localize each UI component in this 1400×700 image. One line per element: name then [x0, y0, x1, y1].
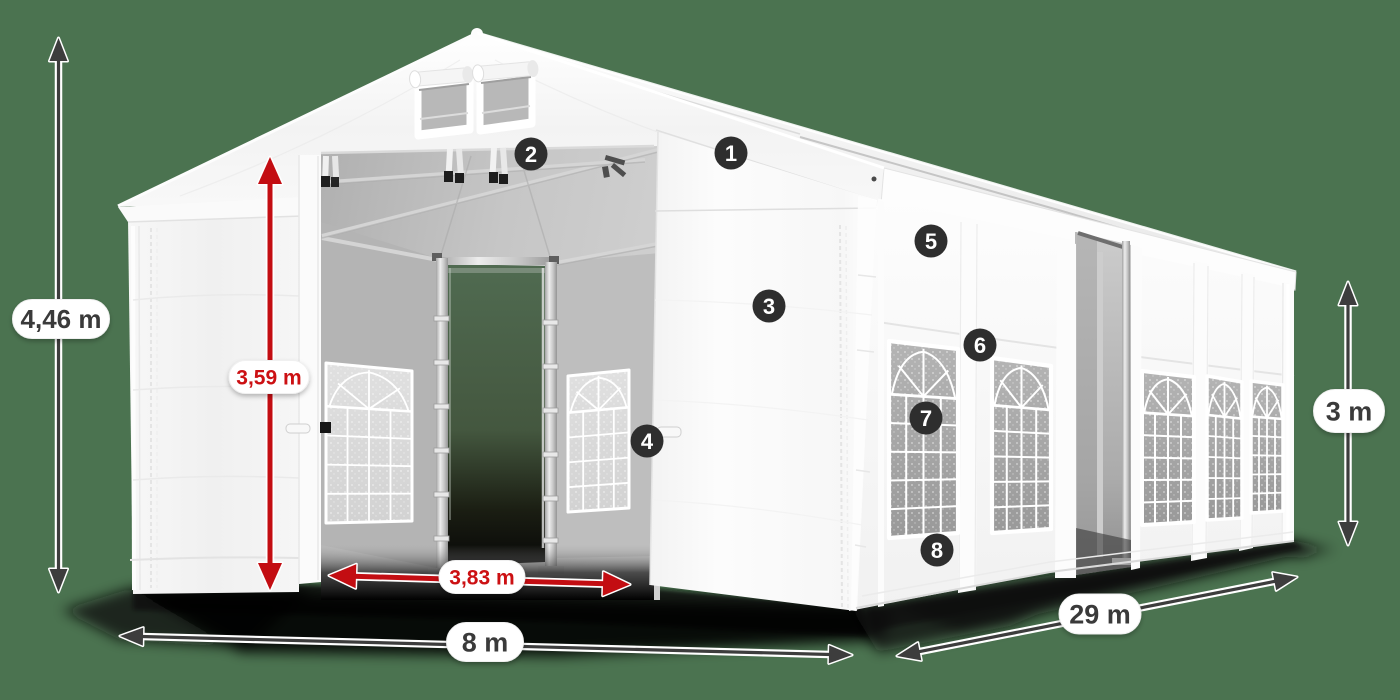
svg-text:3,83 m: 3,83 m	[449, 566, 514, 589]
svg-text:4,46 m: 4,46 m	[21, 304, 102, 334]
svg-text:3 m: 3 m	[1326, 396, 1373, 426]
svg-text:1: 1	[725, 141, 737, 166]
svg-text:2: 2	[525, 142, 537, 167]
svg-text:7: 7	[920, 406, 932, 431]
svg-text:8 m: 8 m	[462, 628, 509, 658]
svg-text:3: 3	[763, 294, 775, 319]
svg-text:8: 8	[931, 538, 943, 563]
svg-text:4: 4	[641, 429, 654, 454]
svg-text:6: 6	[974, 333, 986, 358]
svg-text:29 m: 29 m	[1069, 600, 1131, 630]
svg-text:5: 5	[925, 229, 937, 254]
svg-text:3,59 m: 3,59 m	[236, 366, 301, 389]
